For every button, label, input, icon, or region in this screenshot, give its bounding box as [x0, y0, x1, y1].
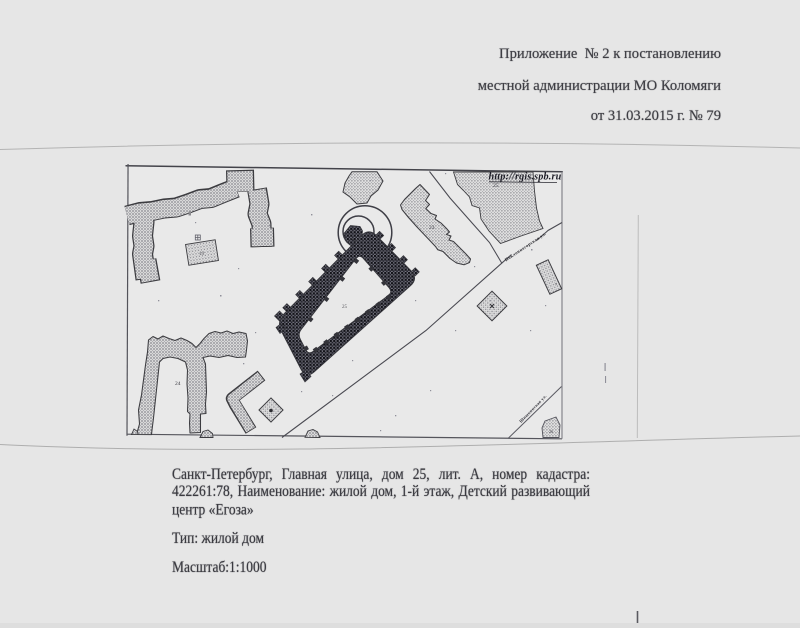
svg-text:24: 24 — [175, 381, 181, 387]
svg-text:19: 19 — [199, 252, 205, 257]
svg-text:25: 25 — [493, 183, 499, 189]
svg-text:x: x — [555, 281, 557, 286]
svg-text:25: 25 — [342, 305, 348, 310]
svg-text:26: 26 — [549, 429, 553, 434]
svg-text:http://rgis.spb.ru: http://rgis.spb.ru — [489, 172, 562, 183]
svg-text:23: 23 — [429, 225, 435, 231]
